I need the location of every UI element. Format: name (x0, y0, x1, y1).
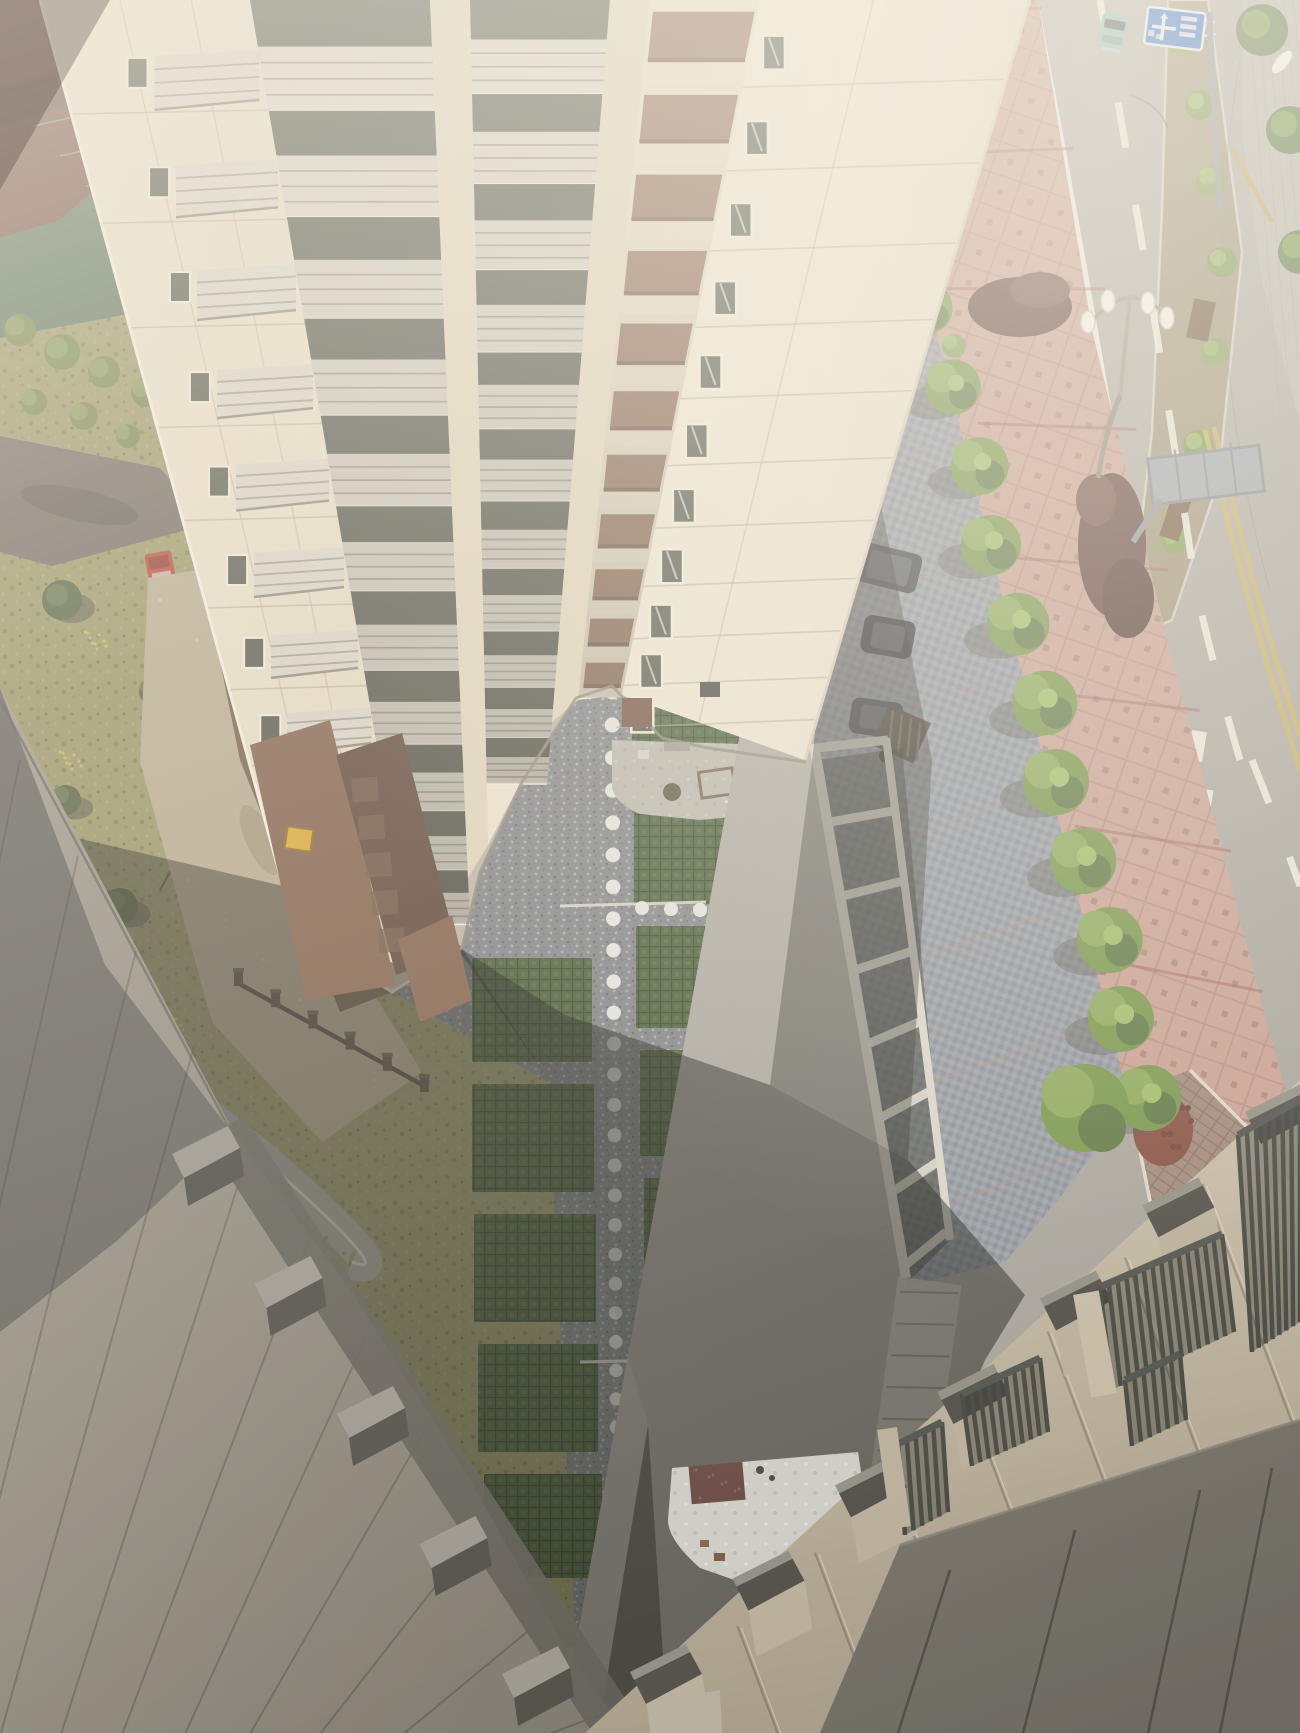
aerial-photo-scene (0, 0, 1300, 1733)
aerial-photo-frame (0, 0, 1300, 1733)
haze-overlay (0, 0, 1300, 1733)
